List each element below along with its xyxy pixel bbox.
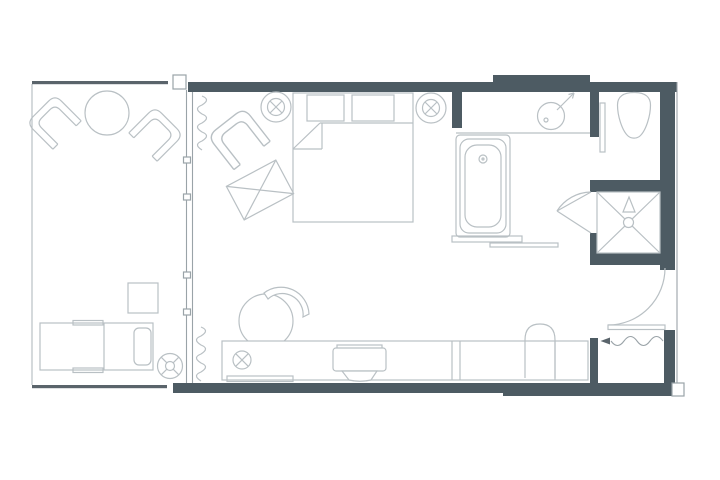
balcony-bottom-railing — [32, 385, 167, 388]
balcony — [27, 75, 186, 388]
sliding-glass-door — [184, 90, 193, 383]
bathtub — [456, 135, 510, 237]
entry — [601, 268, 666, 346]
ceiling-fan-symbol — [158, 354, 183, 379]
floor-plan-page — [0, 0, 720, 480]
double-bed — [293, 93, 413, 222]
ceiling-light-left — [261, 92, 291, 122]
curtain-bottom — [197, 327, 206, 381]
bathroom — [452, 93, 660, 254]
round-sink — [538, 93, 575, 130]
towel-rail — [490, 243, 558, 247]
chaise-lounge — [40, 321, 153, 373]
bedroom-armchair — [208, 108, 270, 170]
faucet — [557, 93, 574, 110]
door-swing-arc — [608, 268, 665, 325]
ottoman — [226, 160, 293, 220]
column-bottom — [672, 383, 684, 396]
column-top — [173, 75, 186, 89]
shower — [597, 192, 660, 253]
ceiling-light-right — [416, 93, 446, 123]
balcony-armchair-left — [27, 95, 81, 149]
entry-door-leaf — [608, 325, 665, 330]
shower-drain — [624, 218, 634, 228]
balcony-armchair-right — [129, 107, 183, 161]
desk-chair — [239, 287, 309, 348]
wc-door-leaf — [600, 103, 605, 152]
balcony-round-table — [85, 91, 129, 135]
curtain-top — [198, 96, 207, 150]
balcony-top-railing — [32, 81, 168, 84]
floor-outlet-symbol — [233, 351, 251, 369]
floor-plan-drawing — [0, 0, 720, 480]
shower-door — [557, 192, 591, 233]
entrance-direction-arrow — [601, 338, 611, 345]
balcony-side-table — [128, 283, 158, 313]
entrance-wavy-line — [611, 337, 663, 346]
toilet — [618, 93, 651, 139]
